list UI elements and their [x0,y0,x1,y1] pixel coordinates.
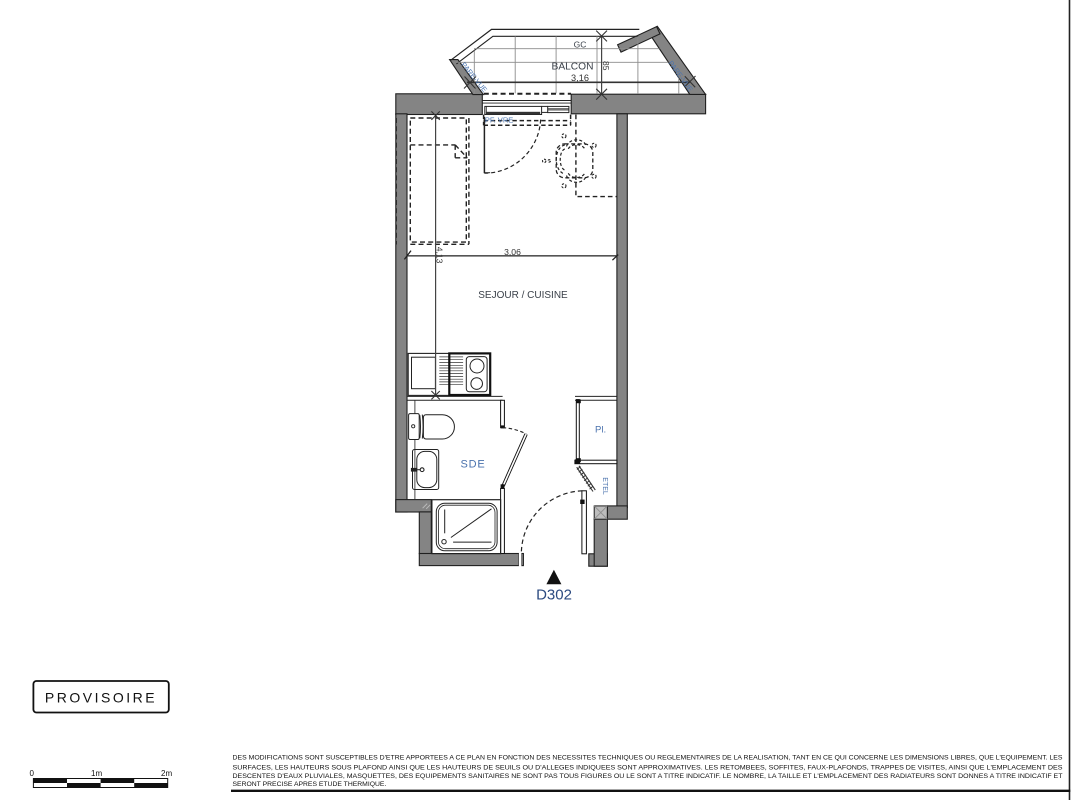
svg-text:85: 85 [601,61,611,71]
svg-text:0: 0 [30,769,35,778]
svg-text:1m: 1m [91,769,102,778]
svg-text:SDE: SDE [461,459,486,471]
svg-text:SURFACES, LES HAUTEURS SOUS PL: SURFACES, LES HAUTEURS SOUS PLAFOND AINS… [233,765,1063,772]
svg-text:PF. VRE: PF. VRE [485,116,513,125]
svg-text:SERONT PRECISE APRES ETUDE THE: SERONT PRECISE APRES ETUDE THERMIQUE. [233,781,387,788]
svg-text:SEJOUR / CUISINE: SEJOUR / CUISINE [478,290,568,301]
svg-text:3,06: 3,06 [504,247,521,257]
svg-text:BALCON: BALCON [552,62,594,73]
svg-text:D302: D302 [536,587,572,604]
svg-text:GC: GC [574,39,587,49]
svg-text:ETEL: ETEL [601,477,608,495]
svg-text:DESCENTES D'EAUX PLUVIALES, MA: DESCENTES D'EAUX PLUVIALES, MASQUETTES, … [233,773,1063,780]
svg-text:4,13: 4,13 [434,247,444,264]
svg-text:2m: 2m [161,769,172,778]
svg-text:Pl.: Pl. [595,425,606,436]
svg-text:PROVISOIRE: PROVISOIRE [45,690,157,706]
svg-text:3,16: 3,16 [571,73,589,83]
svg-text:DES MODIFICATIONS SONT SUSCEPT: DES MODIFICATIONS SONT SUSCEPTIBLES D'ET… [233,755,1063,762]
